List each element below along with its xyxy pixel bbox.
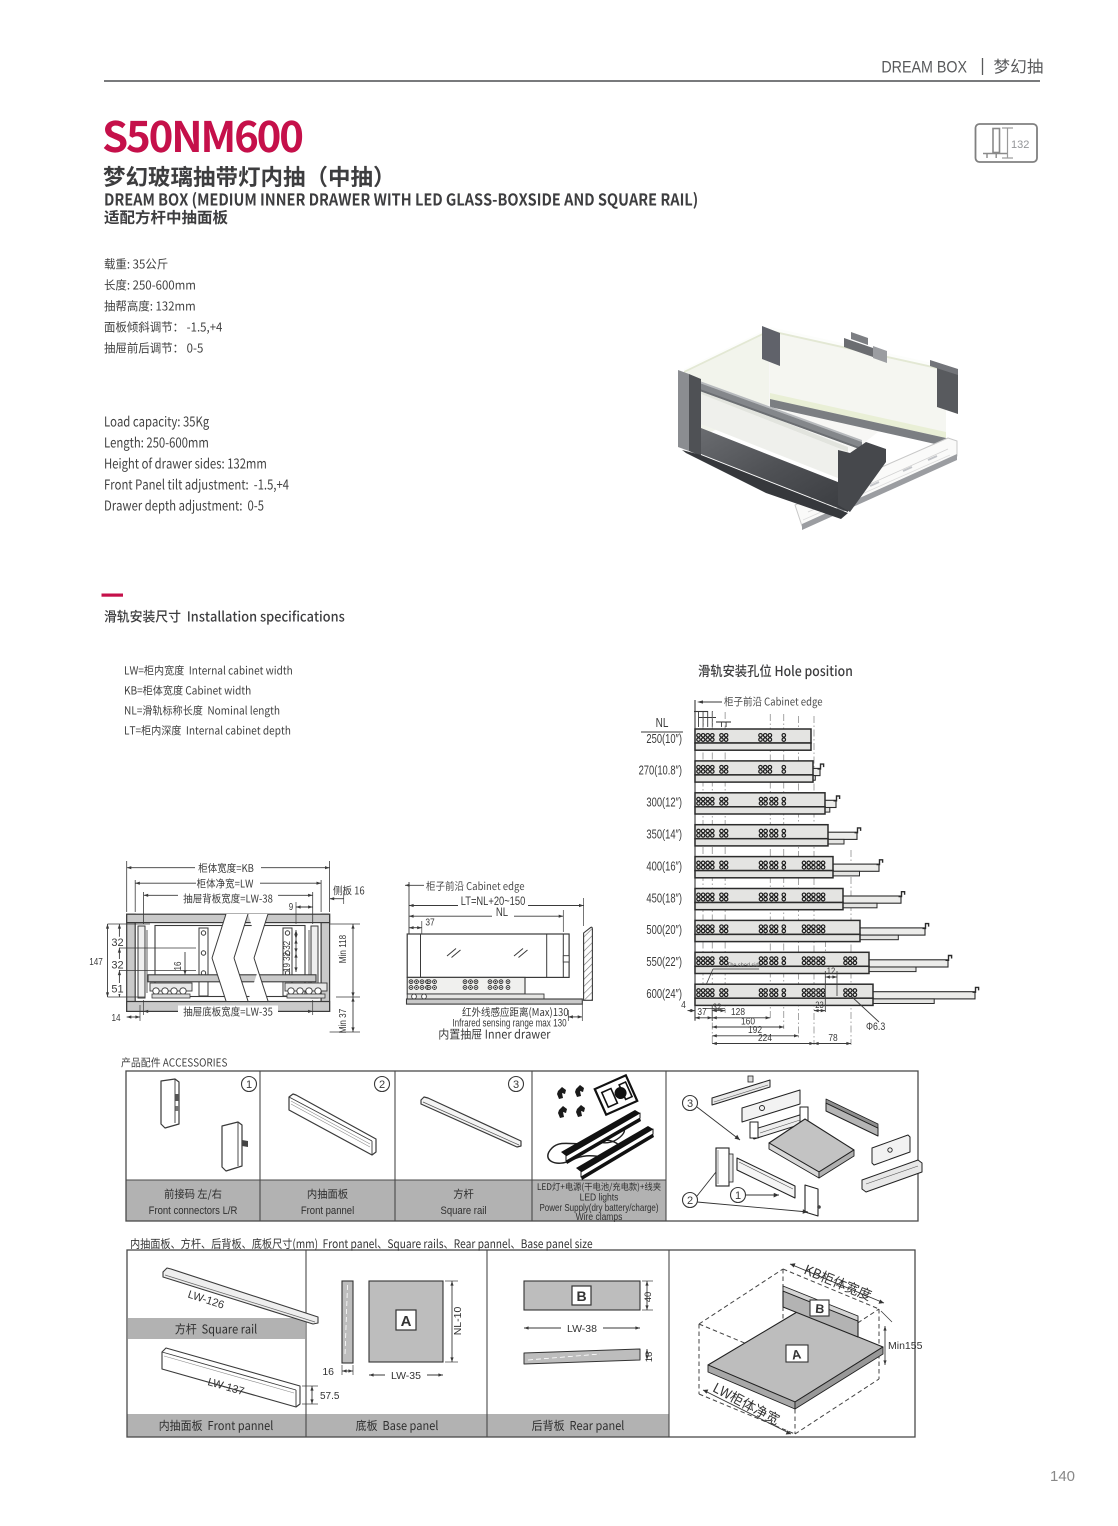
svg-text:3: 3 [513,1079,519,1091]
svg-text:600(24″): 600(24″) [646,988,682,1002]
svg-text:51: 51 [111,984,123,996]
svg-text:2: 2 [379,1079,385,1091]
svg-text:Min155: Min155 [888,1340,923,1352]
svg-text:78: 78 [828,1032,837,1044]
svg-text:NL: NL [656,717,669,730]
svg-text:Front connectors L/R: Front connectors L/R [149,1205,238,1217]
svg-text:Φ6.3: Φ6.3 [866,1021,886,1033]
svg-text:Min 37: Min 37 [337,1009,348,1033]
svg-text:270(10.8″): 270(10.8″) [639,765,682,779]
svg-text:B: B [576,1288,586,1304]
svg-text:9: 9 [289,901,293,912]
svg-text:NL: NL [496,906,508,919]
svg-text:450(18″): 450(18″) [646,892,682,906]
svg-text:14: 14 [111,1012,120,1023]
svg-text:LED lights: LED lights [580,1192,619,1203]
svg-text:Square rail: Square rail [441,1205,487,1217]
svg-text:19 32 32: 19 32 32 [281,941,292,972]
svg-text:140: 140 [1050,1468,1075,1485]
svg-text:LW-38: LW-38 [567,1323,597,1335]
svg-text:550(22″): 550(22″) [646,956,682,970]
svg-text:37: 37 [425,917,434,929]
svg-text:4: 4 [681,999,686,1011]
svg-text:3: 3 [687,1098,693,1110]
svg-text:16: 16 [322,1366,334,1378]
svg-text:32: 32 [111,960,123,972]
svg-text:400(16″): 400(16″) [646,860,682,874]
svg-text:1: 1 [735,1190,741,1202]
svg-text:16: 16 [644,1352,655,1363]
svg-text:40: 40 [643,1292,654,1303]
svg-text:23: 23 [815,999,824,1010]
svg-text:350(14″): 350(14″) [646,828,682,842]
svg-text:LW-35: LW-35 [391,1370,421,1382]
svg-text:Wire clamps: Wire clamps [576,1211,623,1222]
svg-text:16: 16 [172,962,183,971]
svg-text:Min 118: Min 118 [337,935,348,963]
svg-text:Front pannel: Front pannel [301,1205,354,1217]
svg-text:NL-10: NL-10 [452,1307,464,1336]
svg-text:12: 12 [827,965,836,976]
svg-text:132: 132 [1011,139,1029,151]
svg-text:500(20″): 500(20″) [646,924,682,938]
svg-text:Infrared sensing range max 130: Infrared sensing range max 130 [452,1018,566,1030]
svg-text:The shed side: The shed side [727,963,762,969]
svg-text:B: B [815,1302,825,1317]
svg-text:A: A [401,1313,412,1330]
svg-text:1: 1 [246,1079,252,1091]
svg-text:300(12″): 300(12″) [646,796,682,810]
svg-text:224: 224 [758,1032,772,1044]
svg-text:LT=NL+20~150: LT=NL+20~150 [461,895,526,908]
svg-text:DREAM BOX: DREAM BOX [881,58,967,76]
svg-text:147: 147 [89,956,103,967]
svg-text:2: 2 [687,1195,693,1207]
svg-text:37: 37 [697,1006,706,1018]
svg-text:57.5: 57.5 [320,1391,340,1402]
svg-text:250(10″): 250(10″) [646,733,682,747]
svg-text:32: 32 [111,937,123,949]
